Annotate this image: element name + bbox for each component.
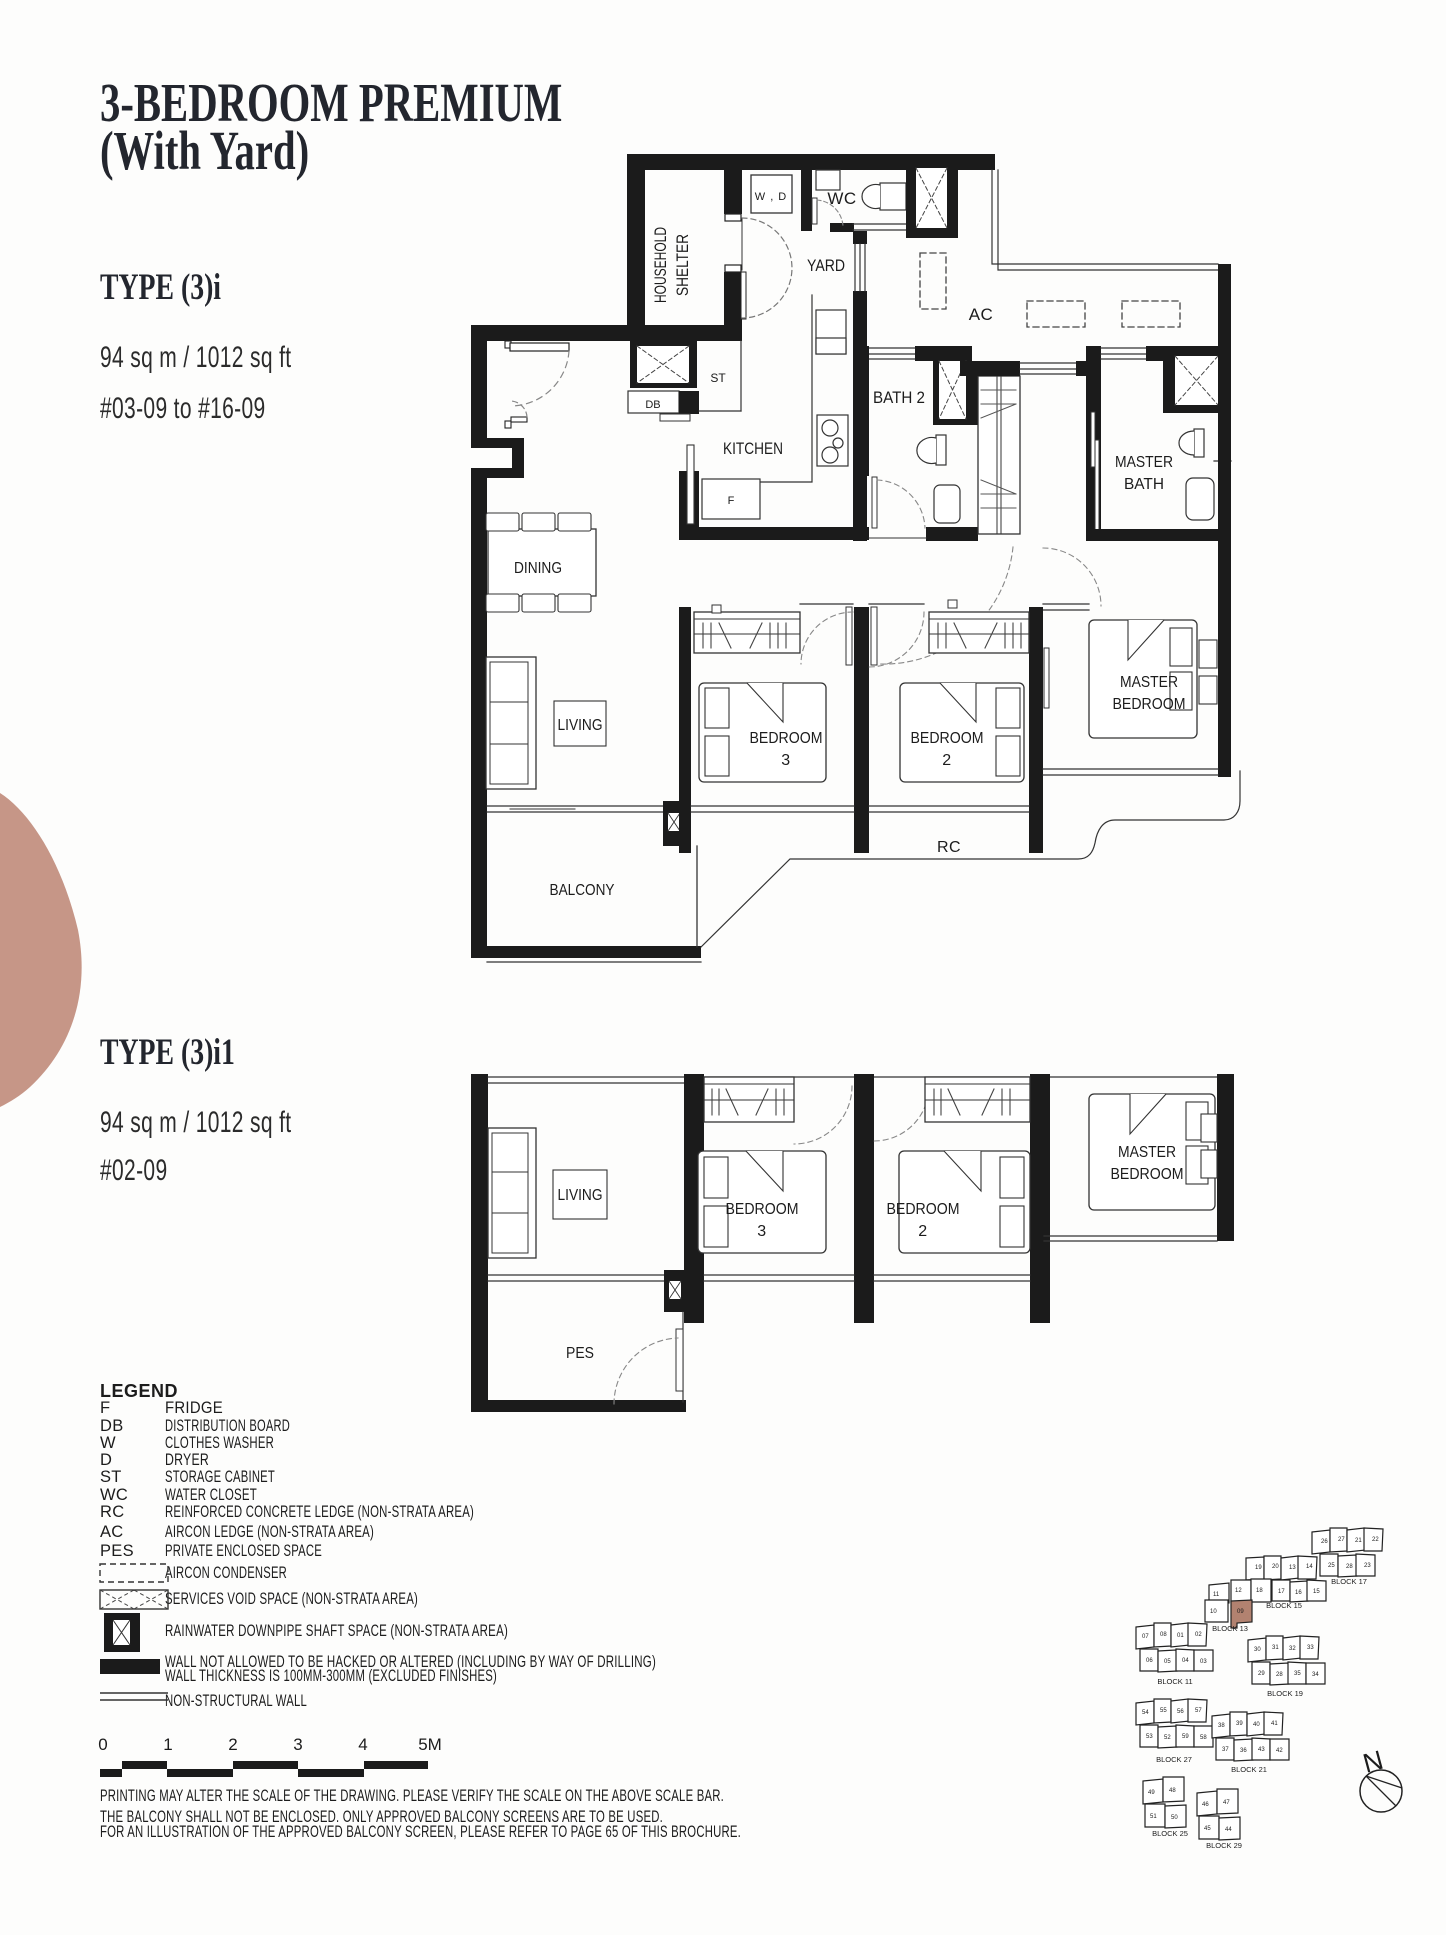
svg-text:MASTER: MASTER (1115, 454, 1173, 471)
svg-text:HOUSEHOLD: HOUSEHOLD (652, 227, 670, 303)
svg-text:PES: PES (566, 1345, 594, 1362)
svg-text:3: 3 (781, 752, 790, 769)
svg-text:53: 53 (1146, 1734, 1153, 1740)
svg-text:35: 35 (1294, 1671, 1301, 1677)
svg-text:38: 38 (1218, 1723, 1225, 1729)
svg-text:PRINTING MAY ALTER THE SCALE O: PRINTING MAY ALTER THE SCALE OF THE DRAW… (100, 1787, 724, 1805)
svg-text:29: 29 (1258, 1671, 1265, 1677)
svg-text:YARD: YARD (807, 256, 845, 275)
svg-text:CLOTHES WASHER: CLOTHES WASHER (165, 1434, 274, 1452)
svg-text:52: 52 (1164, 1735, 1171, 1741)
svg-text:34: 34 (1312, 1672, 1319, 1678)
svg-text:18: 18 (1256, 1588, 1263, 1594)
svg-text:NON-STRUCTURAL WALL: NON-STRUCTURAL WALL (165, 1692, 307, 1710)
svg-text:REINFORCED CONCRETE LEDGE (NON: REINFORCED CONCRETE LEDGE (NON-STRATA AR… (165, 1503, 474, 1521)
svg-text:26: 26 (1321, 1539, 1328, 1545)
svg-text:05: 05 (1164, 1659, 1171, 1665)
svg-text:03: 03 (1200, 1659, 1207, 1665)
svg-text:BATH 2: BATH 2 (873, 388, 925, 407)
svg-text:57: 57 (1195, 1708, 1202, 1714)
svg-text:DINING: DINING (514, 560, 562, 577)
svg-text:19: 19 (1255, 1565, 1262, 1571)
svg-text:22: 22 (1372, 1537, 1379, 1543)
svg-text:ST: ST (710, 371, 726, 385)
svg-text:BEDROOM: BEDROOM (887, 1201, 960, 1218)
svg-text:1: 1 (163, 1735, 172, 1754)
svg-text:41: 41 (1271, 1721, 1278, 1727)
svg-text:BLOCK 21: BLOCK 21 (1231, 1765, 1267, 1774)
svg-text:BEDROOM: BEDROOM (726, 1201, 799, 1218)
svg-text:28: 28 (1346, 1564, 1353, 1570)
svg-text:31: 31 (1272, 1645, 1279, 1651)
svg-text:58: 58 (1200, 1735, 1207, 1741)
svg-text:2: 2 (918, 1223, 927, 1240)
svg-text:BEDROOM: BEDROOM (1111, 1166, 1184, 1183)
svg-text:06: 06 (1146, 1658, 1153, 1664)
svg-text:W , D: W , D (755, 191, 788, 203)
svg-text:FRIDGE: FRIDGE (165, 1399, 223, 1417)
svg-text:BATH: BATH (1124, 476, 1164, 493)
svg-text:25: 25 (1328, 1563, 1335, 1569)
svg-text:09: 09 (1237, 1609, 1244, 1615)
svg-text:13: 13 (1289, 1565, 1296, 1571)
svg-text:WATER CLOSET: WATER CLOSET (165, 1486, 257, 1504)
svg-text:23: 23 (1364, 1563, 1371, 1569)
svg-text:3: 3 (293, 1735, 302, 1754)
svg-text:W: W (100, 1434, 116, 1452)
svg-text:MASTER: MASTER (1120, 674, 1178, 691)
svg-text:RC: RC (937, 839, 961, 856)
svg-text:11: 11 (1213, 1592, 1220, 1598)
svg-text:51: 51 (1150, 1814, 1157, 1820)
svg-text:RAINWATER DOWNPIPE SHAFT SPACE: RAINWATER DOWNPIPE SHAFT SPACE (NON-STRA… (165, 1622, 508, 1640)
svg-text:AIRCON LEDGE (NON-STRATA AREA): AIRCON LEDGE (NON-STRATA AREA) (165, 1523, 374, 1541)
svg-text:BLOCK 17: BLOCK 17 (1331, 1577, 1367, 1586)
svg-text:F: F (728, 495, 735, 507)
svg-text:46: 46 (1202, 1802, 1209, 1808)
svg-text:BLOCK 19: BLOCK 19 (1267, 1689, 1303, 1698)
svg-text:BALCONY: BALCONY (550, 882, 615, 899)
svg-text:28: 28 (1276, 1672, 1283, 1678)
svg-text:20: 20 (1272, 1564, 1279, 1570)
svg-text:DISTRIBUTION BOARD: DISTRIBUTION BOARD (165, 1417, 290, 1435)
svg-text:01: 01 (1177, 1633, 1184, 1639)
svg-text:08: 08 (1160, 1632, 1167, 1638)
svg-text:FOR AN ILLUSTRATION OF THE APP: FOR AN ILLUSTRATION OF THE APPROVED BALC… (100, 1823, 741, 1841)
svg-text:2: 2 (942, 752, 951, 769)
svg-text:KITCHEN: KITCHEN (723, 439, 783, 458)
svg-text:LIVING: LIVING (558, 1187, 603, 1204)
svg-text:32: 32 (1289, 1646, 1296, 1652)
svg-text:02: 02 (1195, 1632, 1202, 1638)
svg-text:10: 10 (1210, 1609, 1217, 1615)
svg-text:F: F (100, 1399, 110, 1417)
svg-text:BEDROOM: BEDROOM (911, 730, 984, 747)
svg-text:BLOCK 13: BLOCK 13 (1212, 1624, 1248, 1633)
svg-text:BEDROOM: BEDROOM (1113, 696, 1186, 713)
svg-text:39: 39 (1236, 1721, 1243, 1727)
svg-text:33: 33 (1307, 1645, 1314, 1651)
svg-text:BLOCK 27: BLOCK 27 (1156, 1755, 1192, 1764)
svg-text:37: 37 (1222, 1747, 1229, 1753)
svg-text:PES: PES (100, 1542, 134, 1560)
svg-text:BLOCK 25: BLOCK 25 (1152, 1829, 1188, 1838)
svg-text:BLOCK 11: BLOCK 11 (1157, 1677, 1192, 1686)
svg-text:42: 42 (1276, 1748, 1283, 1754)
svg-text:44: 44 (1225, 1827, 1232, 1833)
svg-text:AIRCON CONDENSER: AIRCON CONDENSER (165, 1564, 287, 1582)
svg-text:16: 16 (1295, 1590, 1302, 1596)
svg-text:14: 14 (1306, 1564, 1313, 1570)
svg-text:PRIVATE ENCLOSED SPACE: PRIVATE ENCLOSED SPACE (165, 1542, 322, 1560)
svg-text:ST: ST (100, 1468, 122, 1486)
svg-text:40: 40 (1253, 1722, 1260, 1728)
svg-text:BEDROOM: BEDROOM (750, 730, 823, 747)
svg-text:36: 36 (1240, 1748, 1247, 1754)
svg-text:54: 54 (1142, 1710, 1149, 1716)
svg-text:15: 15 (1313, 1589, 1320, 1595)
svg-text:D: D (100, 1451, 112, 1469)
svg-text:LEGEND: LEGEND (100, 1381, 178, 1401)
svg-text:59: 59 (1182, 1734, 1189, 1740)
svg-text:0: 0 (98, 1735, 107, 1754)
svg-text:50: 50 (1171, 1815, 1178, 1821)
svg-text:04: 04 (1182, 1658, 1189, 1664)
svg-text:21: 21 (1355, 1538, 1362, 1544)
svg-text:47: 47 (1223, 1800, 1230, 1806)
svg-text:MASTER: MASTER (1118, 1144, 1176, 1161)
svg-text:WC: WC (827, 189, 856, 208)
svg-text:4: 4 (358, 1735, 367, 1754)
svg-text:49: 49 (1148, 1790, 1155, 1796)
svg-text:27: 27 (1338, 1537, 1345, 1543)
svg-text:2: 2 (228, 1735, 237, 1754)
svg-text:48: 48 (1169, 1788, 1176, 1794)
svg-text:30: 30 (1254, 1647, 1261, 1653)
svg-text:43: 43 (1258, 1747, 1265, 1753)
svg-text:RC: RC (100, 1503, 124, 1521)
svg-text:45: 45 (1204, 1826, 1211, 1832)
svg-text:LIVING: LIVING (558, 717, 603, 734)
svg-text:55: 55 (1160, 1708, 1167, 1714)
svg-text:N: N (1360, 1745, 1387, 1779)
svg-text:DB: DB (645, 399, 660, 411)
svg-text:BLOCK 29: BLOCK 29 (1206, 1841, 1242, 1850)
svg-text:5M: 5M (418, 1735, 442, 1754)
svg-text:56: 56 (1177, 1709, 1184, 1715)
svg-text:3: 3 (757, 1223, 766, 1240)
svg-text:07: 07 (1142, 1634, 1149, 1640)
svg-text:DB: DB (100, 1417, 124, 1435)
svg-text:17: 17 (1278, 1589, 1285, 1595)
svg-text:12: 12 (1235, 1588, 1242, 1594)
svg-text:STORAGE CABINET: STORAGE CABINET (165, 1468, 275, 1486)
svg-text:SHELTER: SHELTER (674, 234, 692, 296)
svg-text:AC: AC (969, 305, 994, 324)
svg-text:SERVICES VOID SPACE (NON-STRAT: SERVICES VOID SPACE (NON-STRATA AREA) (165, 1590, 418, 1608)
svg-text:WALL THICKNESS IS 100MM-300MM: WALL THICKNESS IS 100MM-300MM (EXCLUDED … (165, 1667, 497, 1685)
svg-text:WC: WC (100, 1486, 128, 1504)
svg-text:AC: AC (100, 1523, 124, 1541)
svg-text:DRYER: DRYER (165, 1451, 209, 1469)
